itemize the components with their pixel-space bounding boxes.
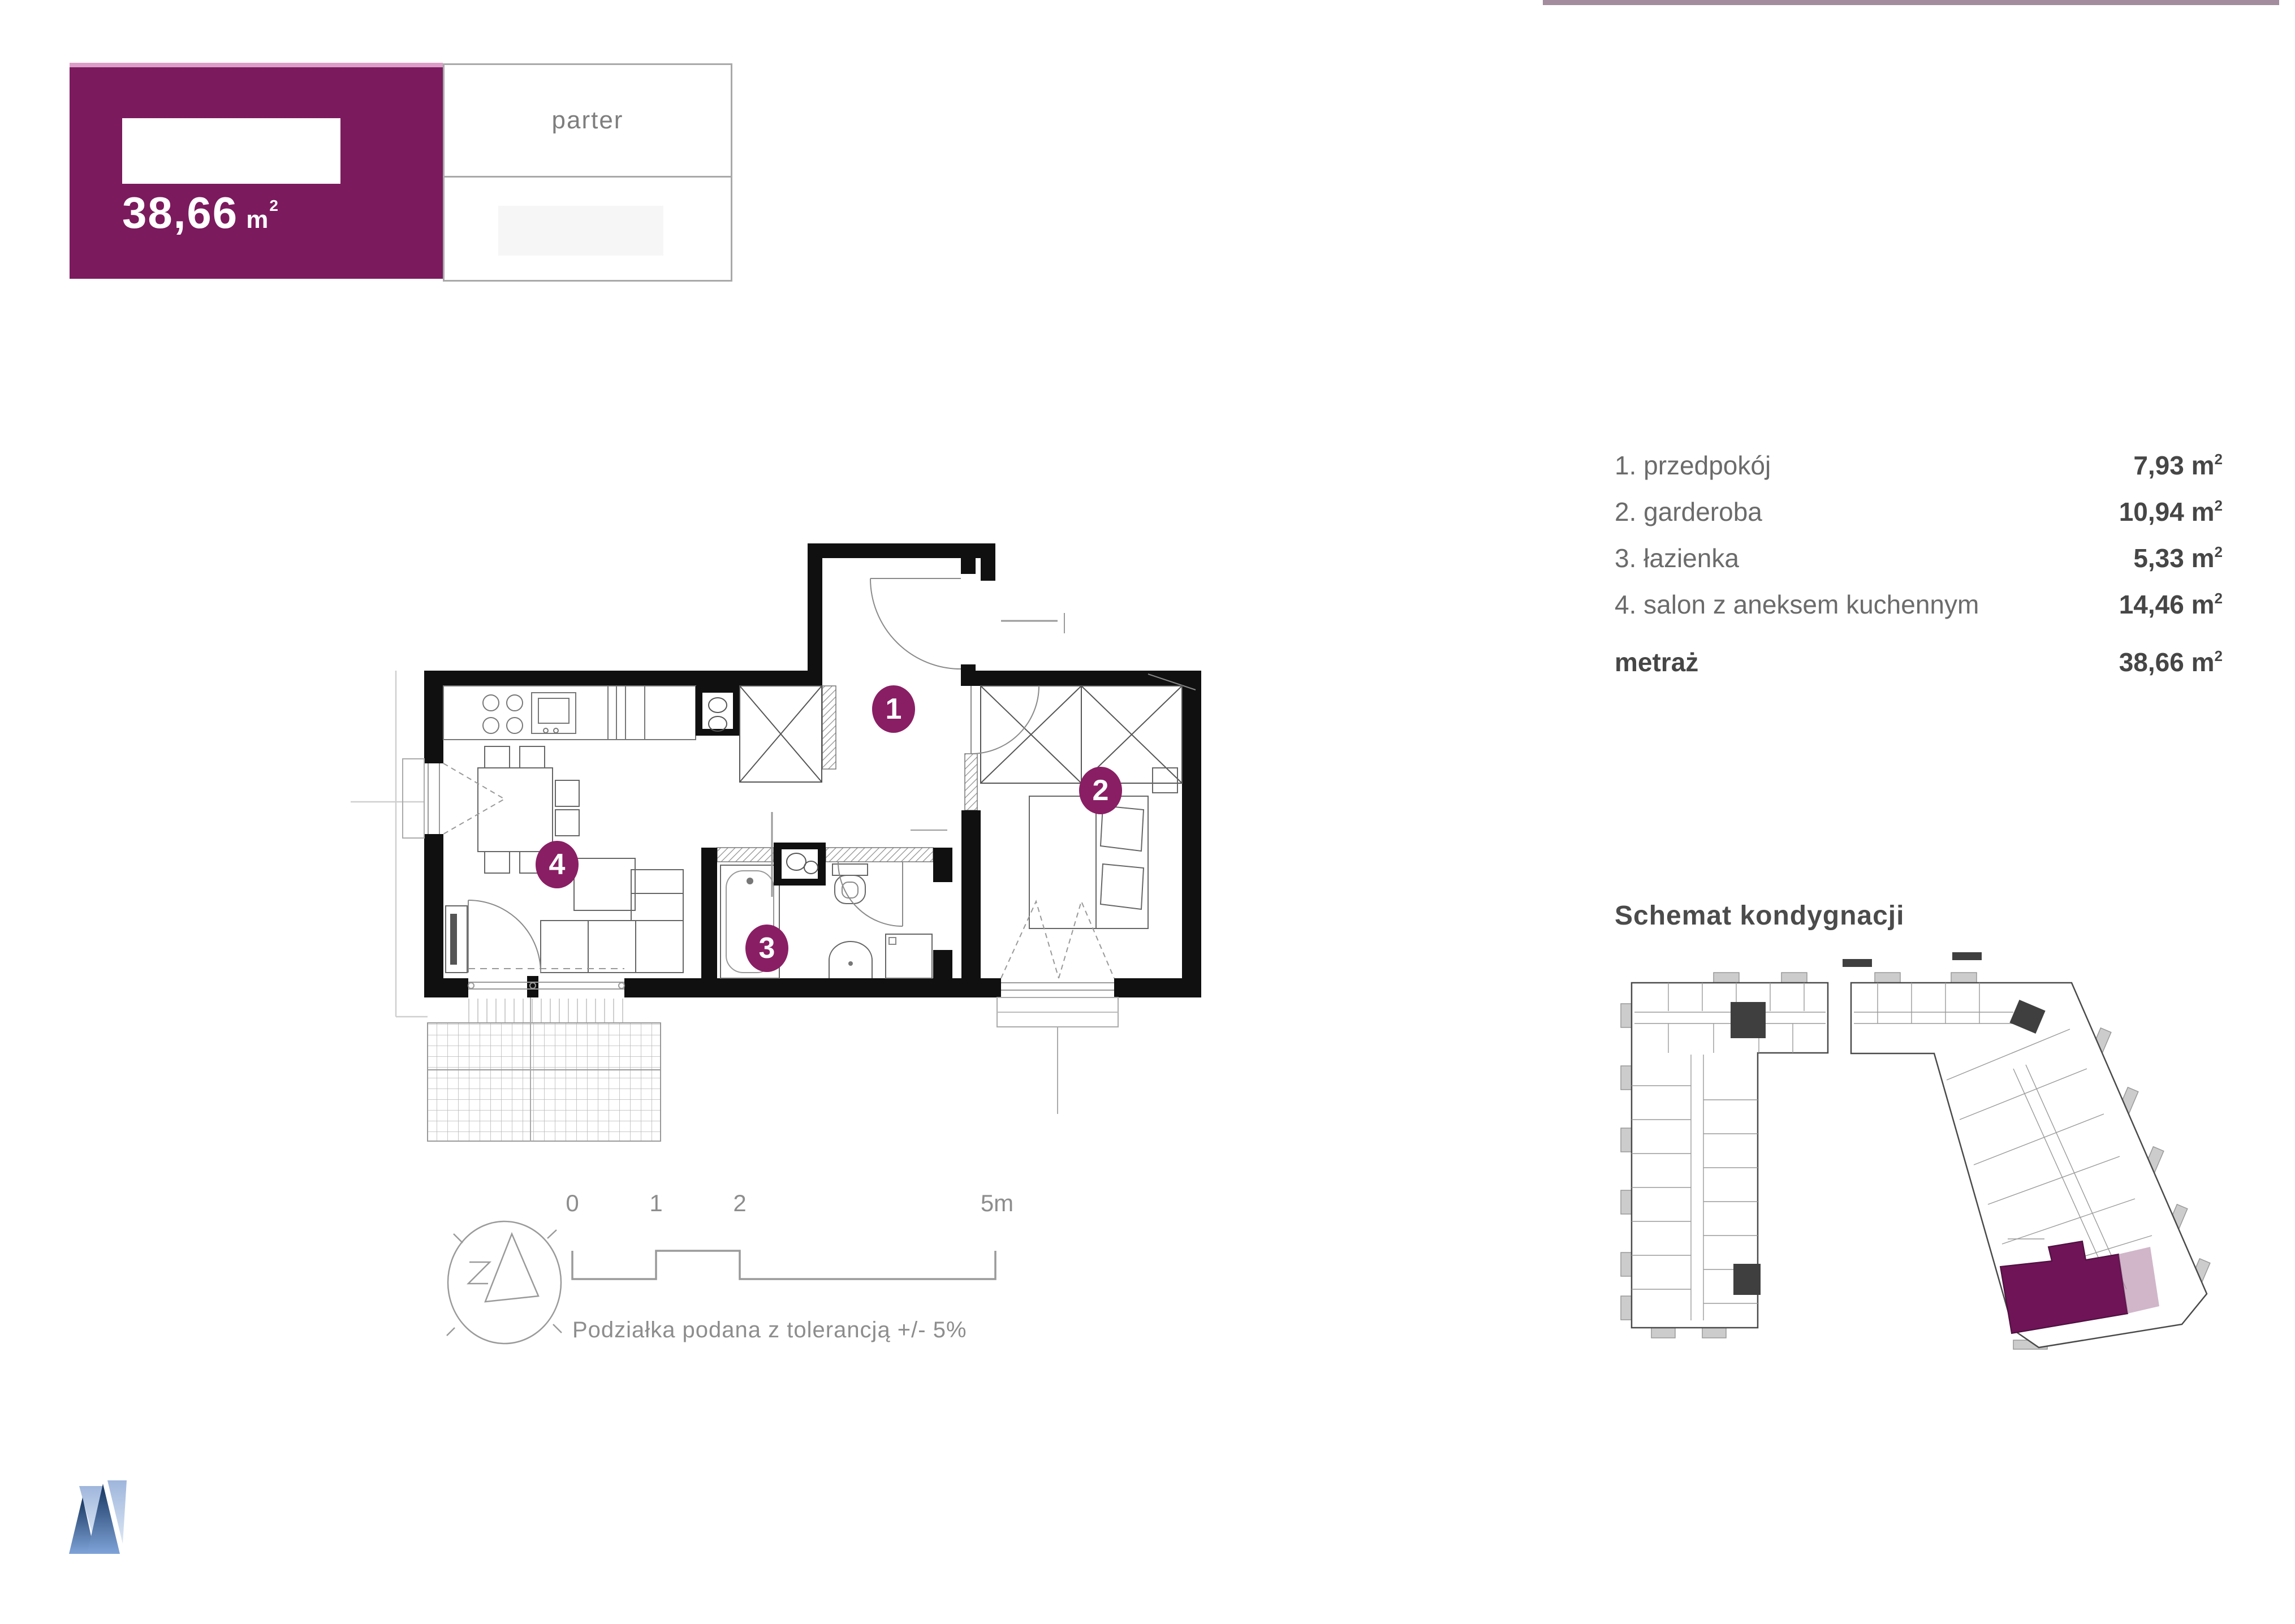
stove-burner-icon bbox=[507, 718, 523, 733]
room-badge-2: 2 bbox=[1079, 767, 1122, 814]
redacted-cell-content bbox=[498, 206, 663, 256]
sofa bbox=[541, 921, 683, 973]
developer-logo bbox=[68, 1480, 133, 1557]
top-accent-strip bbox=[1543, 0, 2279, 5]
scale-tick-2: 2 bbox=[717, 1190, 762, 1217]
washing-machine-icon bbox=[886, 934, 932, 978]
kitchen-sink bbox=[696, 686, 740, 736]
dishwasher-icon bbox=[608, 686, 645, 740]
scale-bar bbox=[572, 1251, 995, 1279]
apartment-area-value: 38,66m2 bbox=[122, 187, 279, 239]
room-badge-3: 3 bbox=[745, 925, 788, 972]
side-table bbox=[574, 858, 635, 910]
scale-tick-1: 1 bbox=[633, 1190, 679, 1217]
room-area: 7,93 m2 bbox=[2133, 450, 2223, 481]
room-area: 10,94 m2 bbox=[2119, 496, 2223, 527]
redacted-apartment-id bbox=[122, 118, 340, 184]
room-row-4: 4. salon z aneksem kuchennym 14,46 m2 bbox=[1615, 581, 2223, 628]
room-area: 5,33 m2 bbox=[2133, 543, 2223, 573]
room-list: 1. przedpokój 7,93 m2 2. garderoba 10,94… bbox=[1615, 442, 2223, 685]
scale-tick-0: 0 bbox=[550, 1190, 595, 1217]
room-label: 1. przedpokój bbox=[1615, 450, 1771, 481]
floor-info-table: parter bbox=[443, 63, 732, 282]
building-schematic bbox=[1617, 950, 2295, 1391]
stove-burner-icon bbox=[507, 695, 523, 711]
floor-plan-drawing bbox=[351, 498, 1312, 1204]
kitchen-counter bbox=[443, 686, 696, 740]
room-label: 2. garderoba bbox=[1615, 496, 1762, 527]
dining-table bbox=[478, 768, 553, 852]
area-unit: m2 bbox=[246, 206, 279, 234]
balcony-terrace bbox=[428, 997, 661, 1141]
room-badge-4: 4 bbox=[536, 841, 579, 888]
room-label: 4. salon z aneksem kuchennym bbox=[1615, 589, 1979, 620]
floor-label-cell: parter bbox=[445, 65, 731, 178]
room-label: 3. łazienka bbox=[1615, 543, 1739, 573]
total-area: 38,66 m2 bbox=[2119, 647, 2223, 677]
area-number: 38,66 bbox=[122, 188, 238, 237]
construction-lines bbox=[351, 671, 428, 1017]
floor-empty-cell bbox=[445, 178, 731, 278]
total-area-row: metraż 38,66 m2 bbox=[1615, 639, 2223, 685]
total-label: metraż bbox=[1615, 647, 1698, 677]
scale-tolerance-note: Podziałka podana z tolerancją +/- 5% bbox=[572, 1318, 967, 1343]
room-badge-1: 1 bbox=[872, 685, 915, 733]
pedestal-basin-icon bbox=[829, 941, 872, 978]
floor-label: parter bbox=[552, 106, 624, 135]
apartment-area-box: 38,66m2 bbox=[70, 67, 443, 279]
north-arrow-icon bbox=[447, 1221, 562, 1344]
room-row-3: 3. łazienka 5,33 m2 bbox=[1615, 535, 2223, 581]
stove-burner-icon bbox=[483, 695, 499, 711]
room-row-2: 2. garderoba 10,94 m2 bbox=[1615, 489, 2223, 535]
header-accent-line bbox=[70, 63, 443, 67]
stove-burner-icon bbox=[483, 718, 499, 733]
wardrobes bbox=[740, 686, 1182, 783]
schematic-title: Schemat kondygnacji bbox=[1615, 900, 1904, 931]
scale-tick-5m: 5m bbox=[972, 1190, 1023, 1217]
room-row-1: 1. przedpokój 7,93 m2 bbox=[1615, 442, 2223, 489]
pillow-icon bbox=[1101, 864, 1144, 909]
room-area: 14,46 m2 bbox=[2119, 589, 2223, 620]
